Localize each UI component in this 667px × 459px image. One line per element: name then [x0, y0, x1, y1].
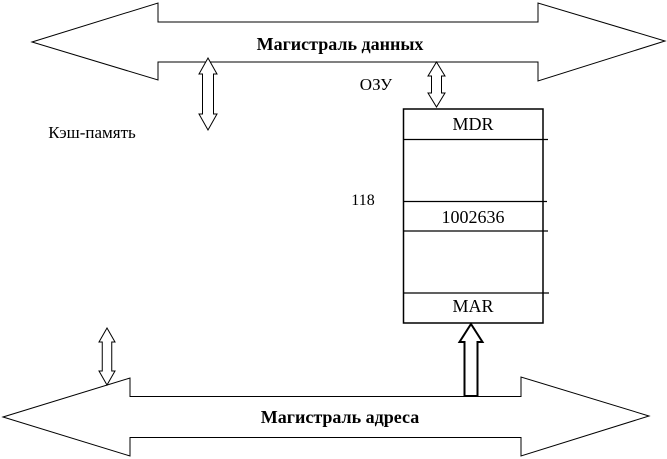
- mdr-register-label: MDR: [403, 113, 543, 135]
- address-bus-to-mar-arrow: [460, 324, 483, 396]
- diagram-canvas: [0, 0, 667, 459]
- address-bus-label: Магистраль адреса: [230, 406, 450, 428]
- cache-address-bus-connector-arrow: [99, 328, 115, 385]
- mar-register-label: MAR: [403, 295, 543, 317]
- data-bus-label: Магистраль данных: [230, 33, 450, 55]
- ram-label: ОЗУ: [351, 73, 401, 95]
- memory-architecture-diagram: Магистраль данных Кэш-память ОЗУ 118 MDR…: [0, 0, 667, 459]
- ram-data-bus-connector-arrow: [428, 62, 445, 107]
- address-value-label: 118: [343, 190, 383, 211]
- memory-cell-value: 1002636: [403, 206, 543, 228]
- cache-memory-label: Кэш-память: [42, 121, 142, 143]
- cache-data-bus-connector-arrow: [199, 58, 217, 130]
